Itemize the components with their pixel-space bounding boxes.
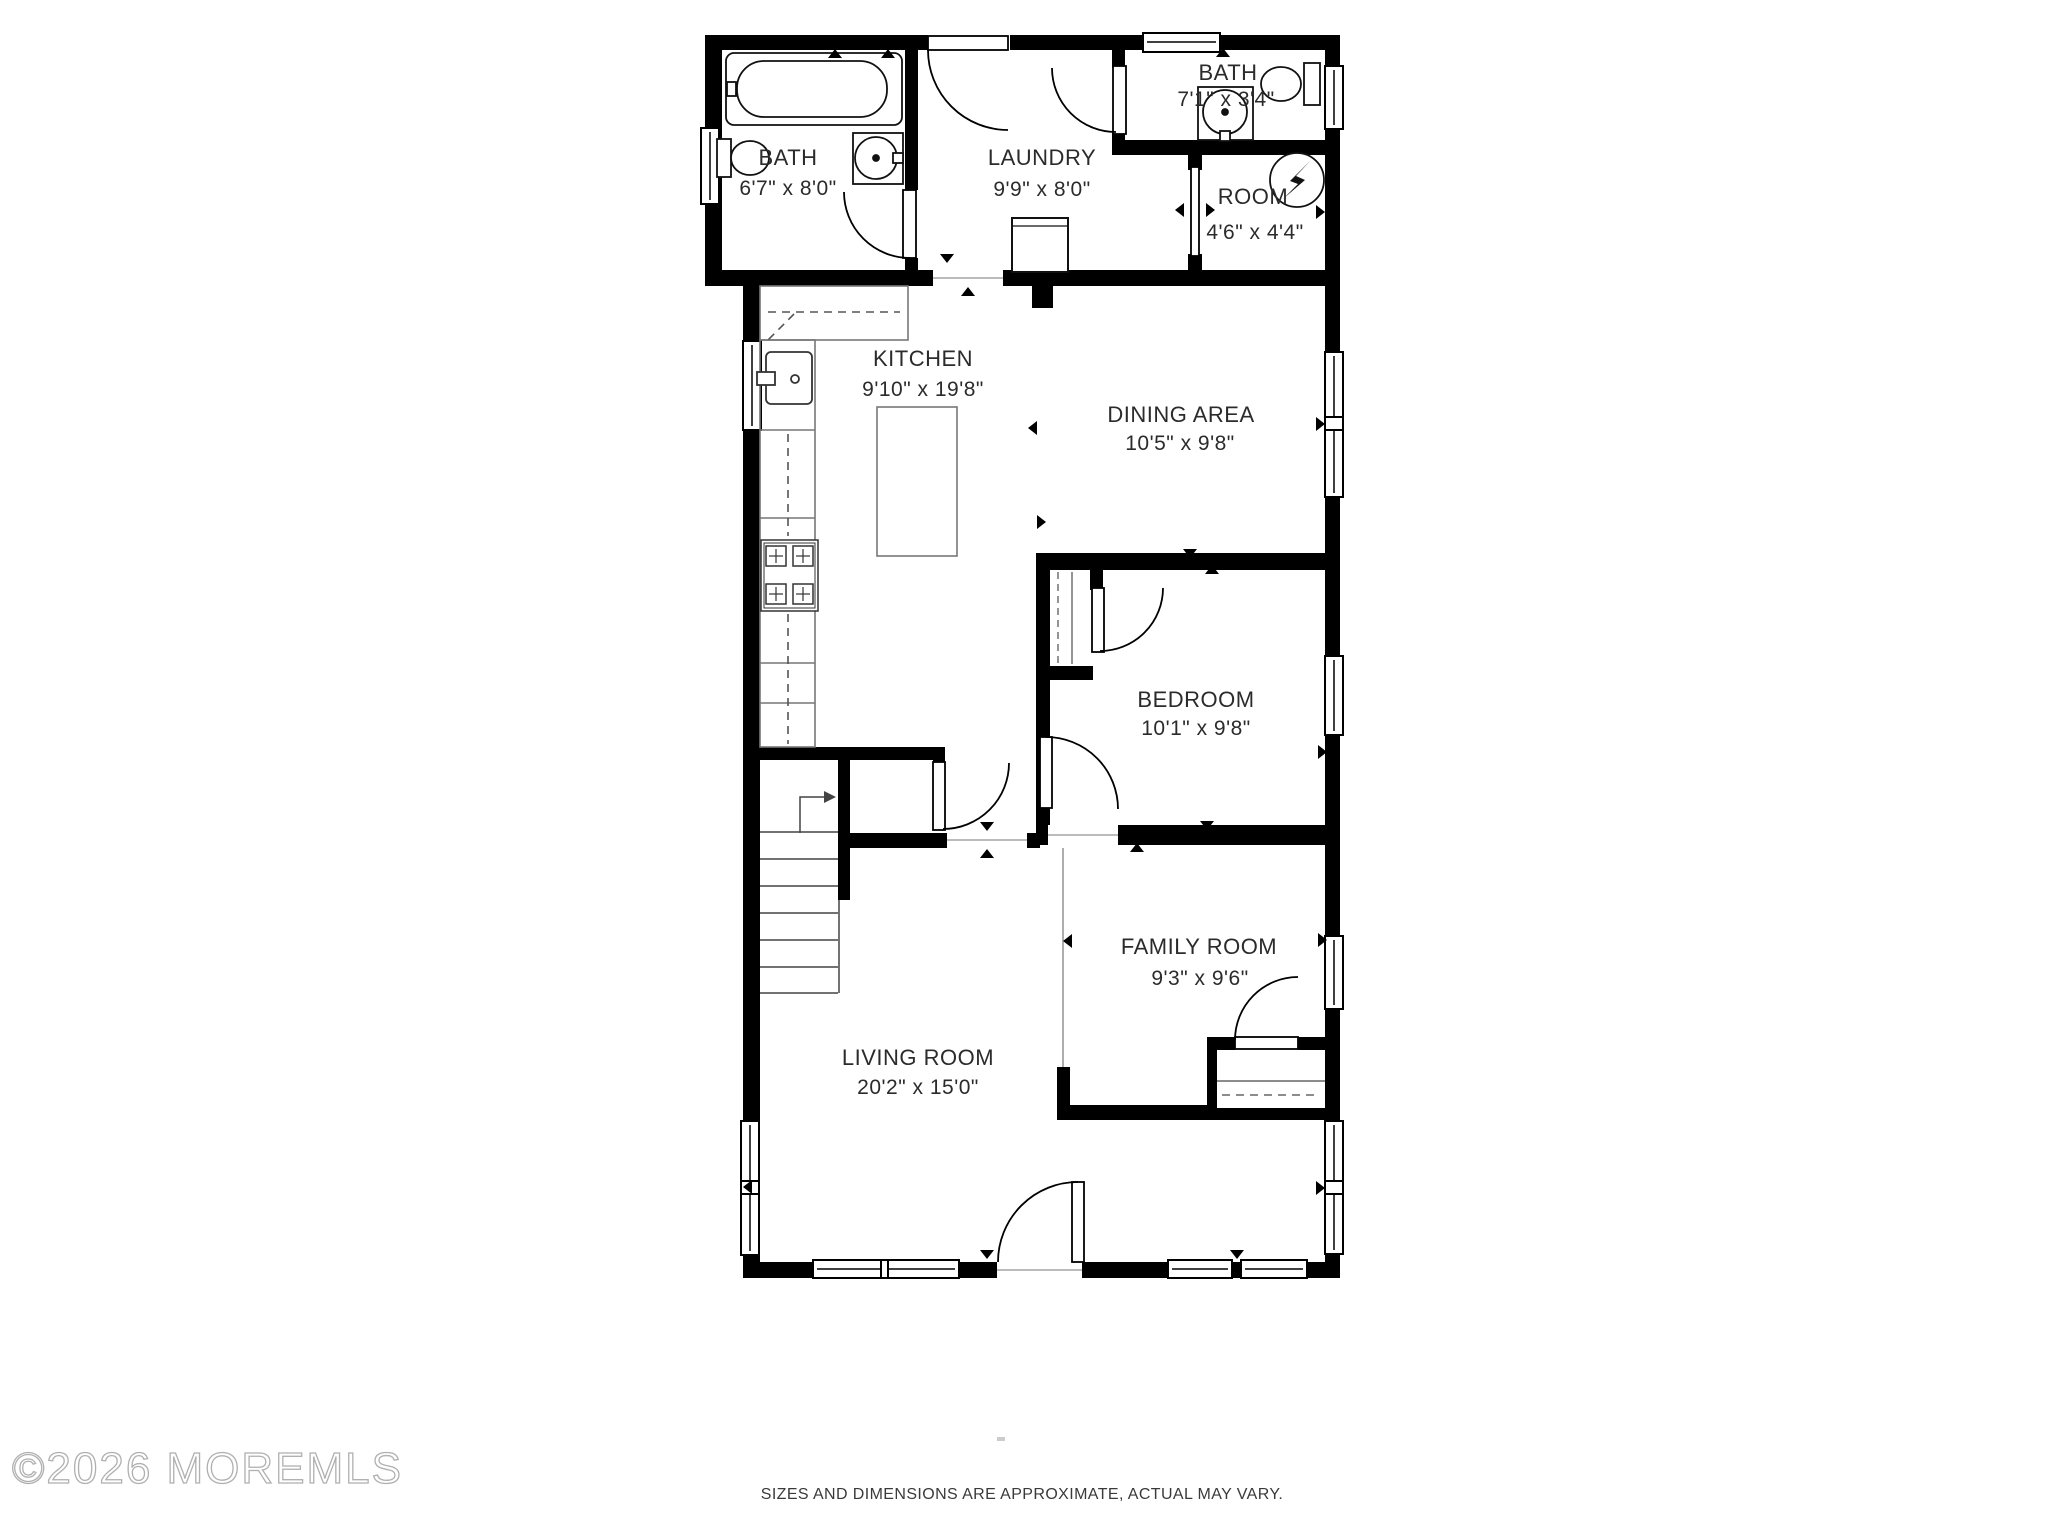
floor-plan-page: BATH 6'7" x 8'0" LAUNDRY 9'9" x 8'0" BAT…	[0, 0, 2048, 1536]
room-dims-kitchen: 9'10" x 19'8"	[862, 378, 984, 402]
room-label-family: FAMILY ROOM	[1121, 934, 1277, 960]
kitchen-island	[877, 407, 957, 556]
room-label-bath-main: BATH	[758, 145, 817, 171]
room-label-living: LIVING ROOM	[842, 1045, 994, 1071]
room-label-bedroom: BEDROOM	[1137, 687, 1254, 713]
bedroom-door	[1040, 737, 1118, 809]
bathtub-icon	[726, 53, 902, 125]
bedroom-closet-door	[1092, 588, 1163, 652]
room-dims-bath-main: 6'7" x 8'0"	[739, 177, 836, 201]
counter-top	[760, 286, 908, 340]
floor-plan-drawing	[0, 0, 2048, 1536]
kitchen-sink-icon	[757, 352, 812, 404]
room-label-dining: DINING AREA	[1107, 402, 1254, 428]
room-dims-family: 9'3" x 9'6"	[1151, 967, 1248, 991]
room-dims-living: 20'2" x 15'0"	[857, 1076, 979, 1100]
room-dims-bath-upper: 7'1" x 3'4"	[1177, 88, 1274, 112]
stairs-up-arrow	[800, 797, 824, 833]
room-label-kitchen: KITCHEN	[873, 346, 973, 372]
room-dims-laundry: 9'9" x 8'0"	[993, 178, 1090, 202]
room-dims-bedroom: 10'1" x 9'8"	[1141, 717, 1251, 741]
disclaimer-text: SIZES AND DIMENSIONS ARE APPROXIMATE, AC…	[761, 1486, 1283, 1504]
bath-upper-door	[1052, 66, 1126, 134]
washer-icon	[1012, 218, 1068, 272]
vanity-sink-icon	[853, 133, 903, 184]
front-door	[998, 1182, 1084, 1262]
room-label-laundry: LAUNDRY	[988, 145, 1096, 171]
utility-room-door	[1191, 167, 1199, 256]
stove-icon	[761, 540, 818, 611]
room-label-bath-upper: BATH	[1198, 60, 1257, 86]
entry-door	[928, 36, 1008, 130]
stairs-icon	[760, 791, 839, 993]
scale-tick	[997, 1437, 1005, 1441]
room-dims-utility: 4'6" x 4'4"	[1206, 221, 1303, 245]
room-label-utility: ROOM	[1218, 184, 1288, 210]
opening-threshold-lines	[933, 278, 1118, 1270]
room-dims-dining: 10'5" x 9'8"	[1125, 432, 1235, 456]
bath-main-door	[844, 190, 916, 258]
hall-closet-door	[933, 762, 1009, 830]
copyright-watermark: ©2026 MOREMLS	[12, 1444, 403, 1494]
